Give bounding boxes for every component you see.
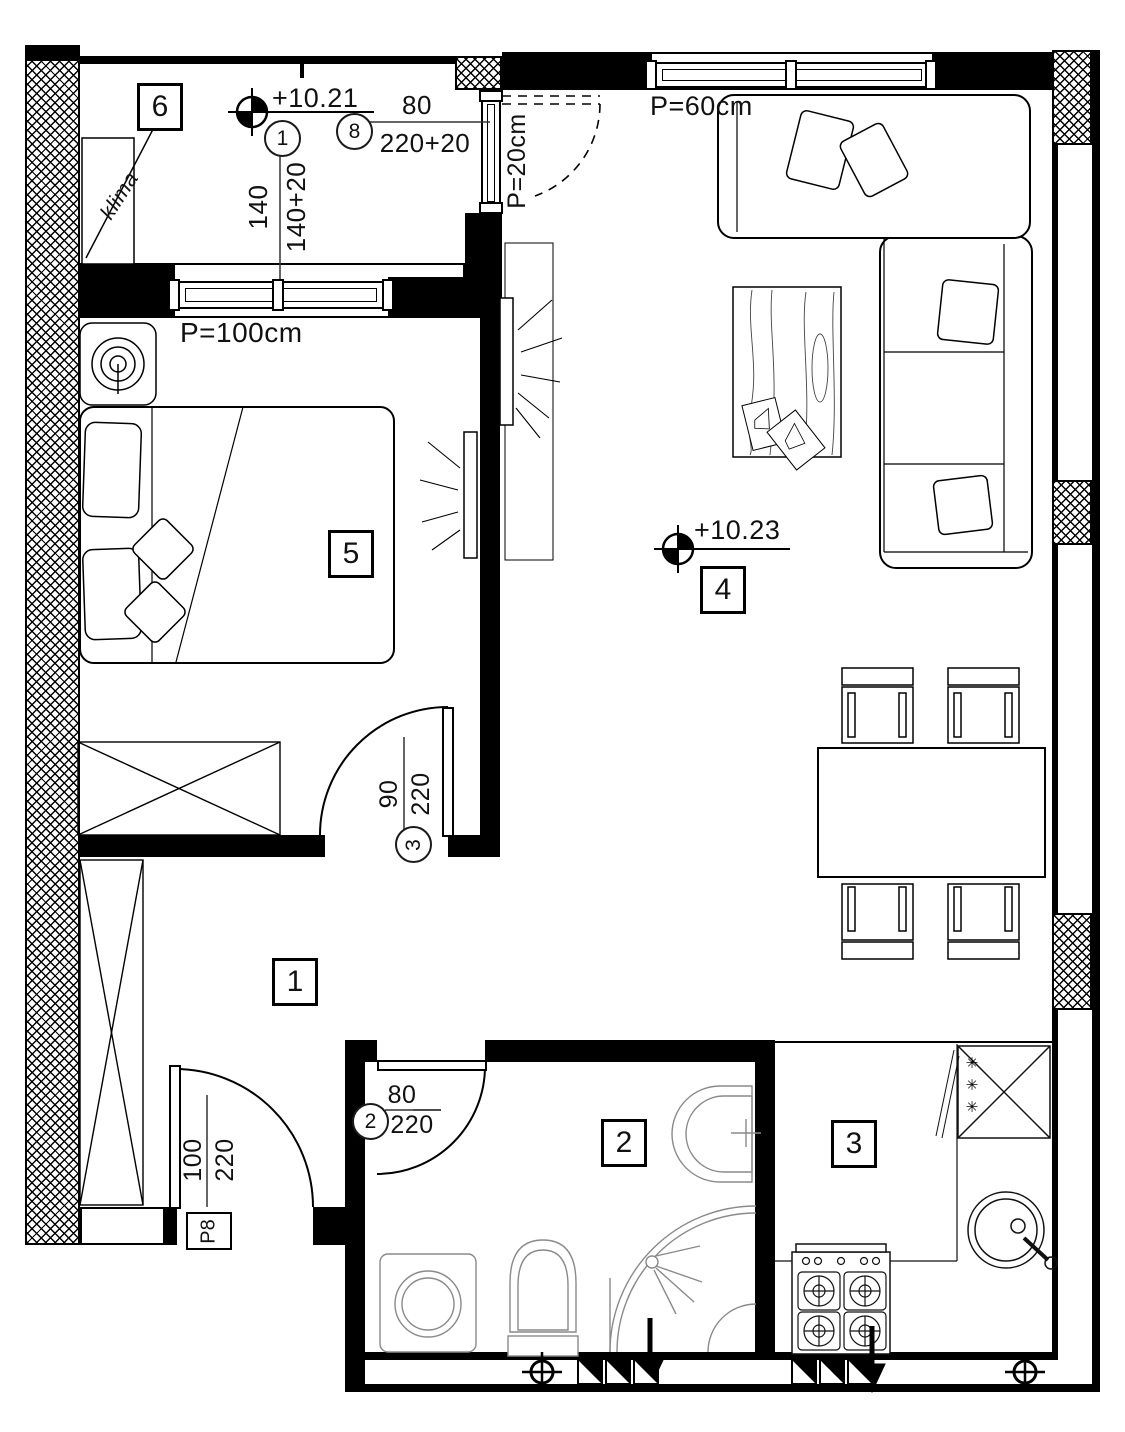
entrance-door-width-value: 100 [179, 1138, 208, 1181]
bathroom-door-width-value: 80 [388, 1081, 417, 1110]
balcony-window-height: 140+20 [283, 152, 309, 262]
room-3-number: 3 [846, 1127, 863, 1161]
entrance-door-leaf [169, 1065, 181, 1209]
balcony-door-mullion-bottom [479, 202, 503, 214]
balcony-door-tag-8: 8 [336, 113, 373, 150]
parapet-living-window-value: P=60cm [650, 91, 753, 122]
balcony-window-height-value: 140+20 [281, 162, 312, 252]
bedroom-window-mullion-left [168, 279, 180, 311]
bedroom-door-width: 90 [377, 754, 401, 834]
entrance-door-height-value: 220 [211, 1138, 240, 1181]
room-1-number: 1 [287, 965, 304, 999]
vent-shaft-cell [605, 1359, 631, 1385]
room-2-bathroom-area [365, 1062, 755, 1352]
balcony-window-width-value: 140 [243, 185, 274, 230]
bathroom-door-height-value: 220 [390, 1111, 433, 1140]
bathroom-door-tag-number: 2 [365, 1110, 377, 1134]
room-5-number: 5 [343, 537, 360, 571]
balcony-door-frame [481, 93, 501, 213]
parapet-bedroom-window-value: P=100cm [180, 317, 303, 349]
balcony-door-glass [487, 104, 495, 202]
bedroom-living-wall [480, 318, 500, 835]
bedroom-door-height: 220 [409, 749, 433, 839]
balcony-door-pier [465, 213, 502, 318]
elevation-balcony-value: +10.21 [272, 83, 358, 114]
room-label-6: 6 [137, 83, 183, 131]
room-label-1: 1 [272, 958, 318, 1006]
room-6-number: 6 [152, 90, 169, 124]
bathroom-door-width: 80 [382, 1083, 422, 1107]
balcony-corner-column [455, 56, 502, 90]
entrance-door-height: 220 [213, 1115, 237, 1205]
room-4-living-area [500, 90, 1052, 1040]
room-3-kitchen-area [775, 1042, 1052, 1352]
vent-shaft-cell [577, 1359, 603, 1385]
balcony-door-mullion-top [479, 90, 503, 102]
top-right-corner-column [1052, 50, 1092, 145]
elevation-living: +10.23 [694, 516, 804, 544]
bedroom-door-width-value: 90 [375, 780, 404, 809]
left-insulated-wall [25, 45, 80, 1245]
bathroom-door-height: 220 [384, 1113, 440, 1137]
floor-plan-canvas: 6 5 1 2 3 4 +10.21 +10.23 1 8 3 2 140 14… [0, 0, 1125, 1432]
balcony-railing [80, 56, 458, 64]
right-outer-wall-line [1092, 50, 1100, 1392]
room-label-3: 3 [831, 1120, 877, 1168]
bedroom-door-tag-number: 3 [402, 839, 426, 851]
left-wall-cap [25, 45, 80, 61]
right-inner-wall-c [1052, 1010, 1058, 1355]
right-wall-column-3 [1052, 913, 1092, 1010]
living-window-outer-line [652, 52, 932, 54]
vent-shaft-cell [633, 1359, 659, 1385]
bathroom-door-leaf [377, 1060, 487, 1071]
vent-shaft-cell [819, 1359, 845, 1385]
balcony-door-height-value: 220+20 [380, 128, 470, 159]
living-window-mullion-left [645, 60, 657, 90]
living-window-mullion-mid [785, 60, 797, 90]
bathroom-top-wall-b [485, 1040, 775, 1062]
right-wall-column-2 [1052, 480, 1092, 545]
vent-shaft-cell [791, 1359, 817, 1385]
balcony-door-width-value: 80 [402, 90, 432, 121]
balcony-door-width: 80 [387, 92, 447, 118]
parapet-wall-left-pier [80, 263, 175, 318]
entrance-door-mark-value: P8 [198, 1219, 221, 1243]
bedroom-window-mullion-mid [272, 279, 284, 311]
elevation-living-value: +10.23 [694, 515, 780, 546]
parapet-living-window: P=60cm [650, 92, 780, 120]
parapet-balcony-door: P=20cm [504, 96, 530, 226]
room-2-number: 2 [616, 1126, 633, 1160]
entrance-door-width: 100 [181, 1120, 205, 1200]
room-label-4: 4 [700, 566, 746, 614]
room-label-5: 5 [328, 530, 374, 578]
entrance-wall-cavity [80, 1207, 165, 1245]
top-wall-right-of-window [932, 52, 1054, 90]
elevation-balcony: +10.21 [272, 84, 382, 112]
living-window-mullion-right [925, 60, 937, 90]
bedroom-hall-wall-right [448, 835, 500, 857]
top-wall-left-of-window [502, 52, 652, 90]
window-tag-1-number: 1 [277, 127, 289, 151]
bathroom-kitchen-wall [755, 1040, 775, 1355]
bottom-outer-wall-line [345, 1384, 1100, 1392]
entrance-door-mark: P8 [186, 1212, 232, 1250]
bedroom-hall-wall-left [80, 835, 325, 857]
parapet-bedroom-window: P=100cm [180, 318, 330, 348]
bedroom-door-height-value: 220 [407, 772, 436, 815]
balcony-door-tag-number: 8 [349, 120, 361, 144]
balcony-door-height: 220+20 [370, 130, 480, 156]
balcony-window-width: 140 [245, 172, 271, 242]
right-inner-wall-a [1052, 145, 1058, 480]
entrance-wall-jamb-left [163, 1207, 177, 1245]
parapet-balcony-door-value: P=20cm [503, 113, 532, 208]
bedroom-door-leaf [442, 707, 454, 837]
right-inner-wall-b [1052, 545, 1058, 913]
entrance-wall-jamb-right [313, 1207, 345, 1245]
room-label-2: 2 [601, 1119, 647, 1167]
vent-shaft-cell [847, 1359, 873, 1385]
freezer-stars: ✳✳✳ [962, 1054, 980, 1138]
room-4-number: 4 [715, 573, 732, 607]
bedroom-window-mullion-right [382, 279, 394, 311]
bottom-inner-wall-line [345, 1352, 1058, 1360]
parapet-wall-right-pier [388, 277, 465, 318]
